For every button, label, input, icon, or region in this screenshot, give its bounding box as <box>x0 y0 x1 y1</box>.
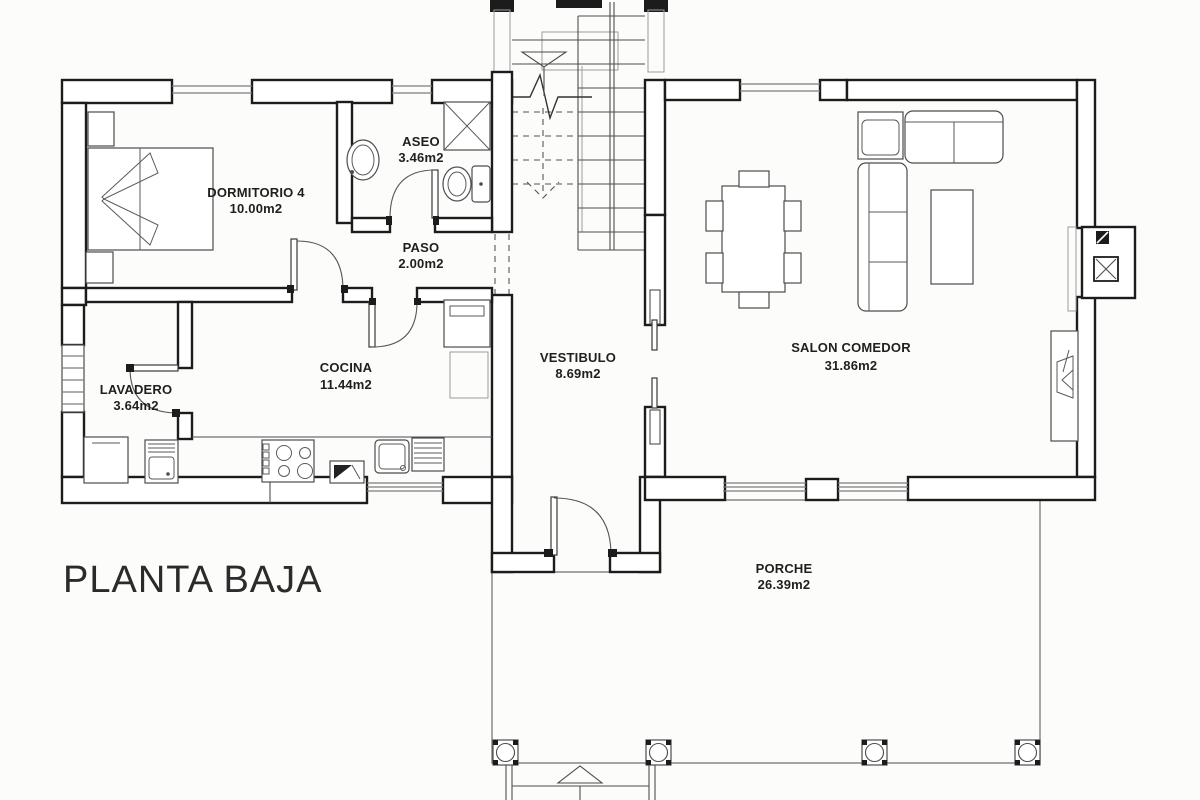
dish-rack <box>412 438 444 471</box>
room-area: 26.39m2 <box>758 577 811 592</box>
bed <box>86 112 213 283</box>
room-area: 3.46m2 <box>398 150 443 165</box>
kitchen-sink <box>375 440 409 473</box>
room-name: DORMITORIO 4 <box>207 185 305 200</box>
stove <box>262 440 314 482</box>
porch-column <box>646 740 671 765</box>
room-area: 10.00m2 <box>230 201 283 216</box>
sofa-horizontal <box>905 111 1003 163</box>
room-name: ASEO <box>402 134 440 149</box>
staircase <box>496 2 645 250</box>
door-dormitorio <box>287 239 348 293</box>
room-area: 11.44m2 <box>320 377 372 392</box>
kitchen-window <box>367 483 443 491</box>
cabinet <box>450 352 488 398</box>
door-cocina <box>369 298 421 347</box>
label-cocina: COCINA 11.44m2 <box>320 360 373 392</box>
direction-up-arrow-icon <box>558 766 602 783</box>
radiator <box>1068 227 1076 311</box>
dining-set <box>706 171 801 308</box>
washing-machine <box>145 440 178 483</box>
label-porche: PORCHE 26.39m2 <box>742 558 828 592</box>
chair <box>784 201 801 231</box>
nightstand <box>88 112 114 146</box>
dashed-direction-arrow-icon <box>527 108 559 198</box>
sofa-vertical <box>858 163 907 311</box>
oven-vent <box>330 461 364 483</box>
sofa-group <box>858 111 1003 311</box>
entry-steps <box>506 765 655 800</box>
room-area: 3.64m2 <box>113 398 158 413</box>
washbasin <box>347 140 379 180</box>
room-name: COCINA <box>320 360 373 375</box>
nightstand <box>86 252 113 283</box>
louver-window <box>62 345 84 412</box>
porch-column <box>862 740 887 765</box>
room-area: 31.86m2 <box>825 358 878 373</box>
dining-table <box>722 186 785 292</box>
window <box>740 84 820 91</box>
direction-down-arrow-icon <box>522 52 566 96</box>
armchair <box>858 112 903 159</box>
room-name: SALON COMEDOR <box>791 340 911 355</box>
toilet <box>443 166 490 202</box>
appliance <box>84 437 128 483</box>
label-dormitorio4: DORMITORIO 4 10.00m2 <box>207 185 305 216</box>
window <box>392 86 432 93</box>
plan-title: PLANTA BAJA <box>63 559 323 601</box>
tv-cabinet <box>1051 331 1078 441</box>
label-aseo: ASEO 3.46m2 <box>398 134 443 165</box>
chair <box>739 171 769 187</box>
door-aseo <box>386 170 439 225</box>
label-lavadero: LAVADERO 3.64m2 <box>100 382 173 413</box>
floorplan-drawing: DORMITORIO 4 10.00m2 ASEO 3.46m2 PASO 2.… <box>0 0 1200 800</box>
coffee-table <box>931 190 973 284</box>
room-name: PASO <box>403 240 440 255</box>
label-vestibulo: VESTIBULO 8.69m2 <box>540 350 616 381</box>
room-name: VESTIBULO <box>540 350 616 365</box>
porch-terrace <box>492 500 1040 800</box>
room-name: PORCHE <box>756 561 813 576</box>
stair-treads <box>578 16 645 232</box>
label-paso: PASO 2.00m2 <box>398 240 443 271</box>
porch-column <box>1015 740 1040 765</box>
fridge <box>444 300 490 347</box>
shower <box>444 102 490 150</box>
label-salon: SALON COMEDOR 31.86m2 <box>791 340 911 373</box>
chair <box>706 253 723 283</box>
room-area: 8.69m2 <box>555 366 600 381</box>
room-area: 2.00m2 <box>398 256 443 271</box>
floorplan-page: DORMITORIO 4 10.00m2 ASEO 3.46m2 PASO 2.… <box>0 0 1200 800</box>
chair <box>739 292 769 308</box>
door-entrance <box>544 497 617 557</box>
chair <box>784 253 801 283</box>
room-name: LAVADERO <box>100 382 173 397</box>
porch-tile-grid <box>492 500 1040 763</box>
window <box>172 86 252 93</box>
chair <box>706 201 723 231</box>
porch-column <box>493 740 518 765</box>
